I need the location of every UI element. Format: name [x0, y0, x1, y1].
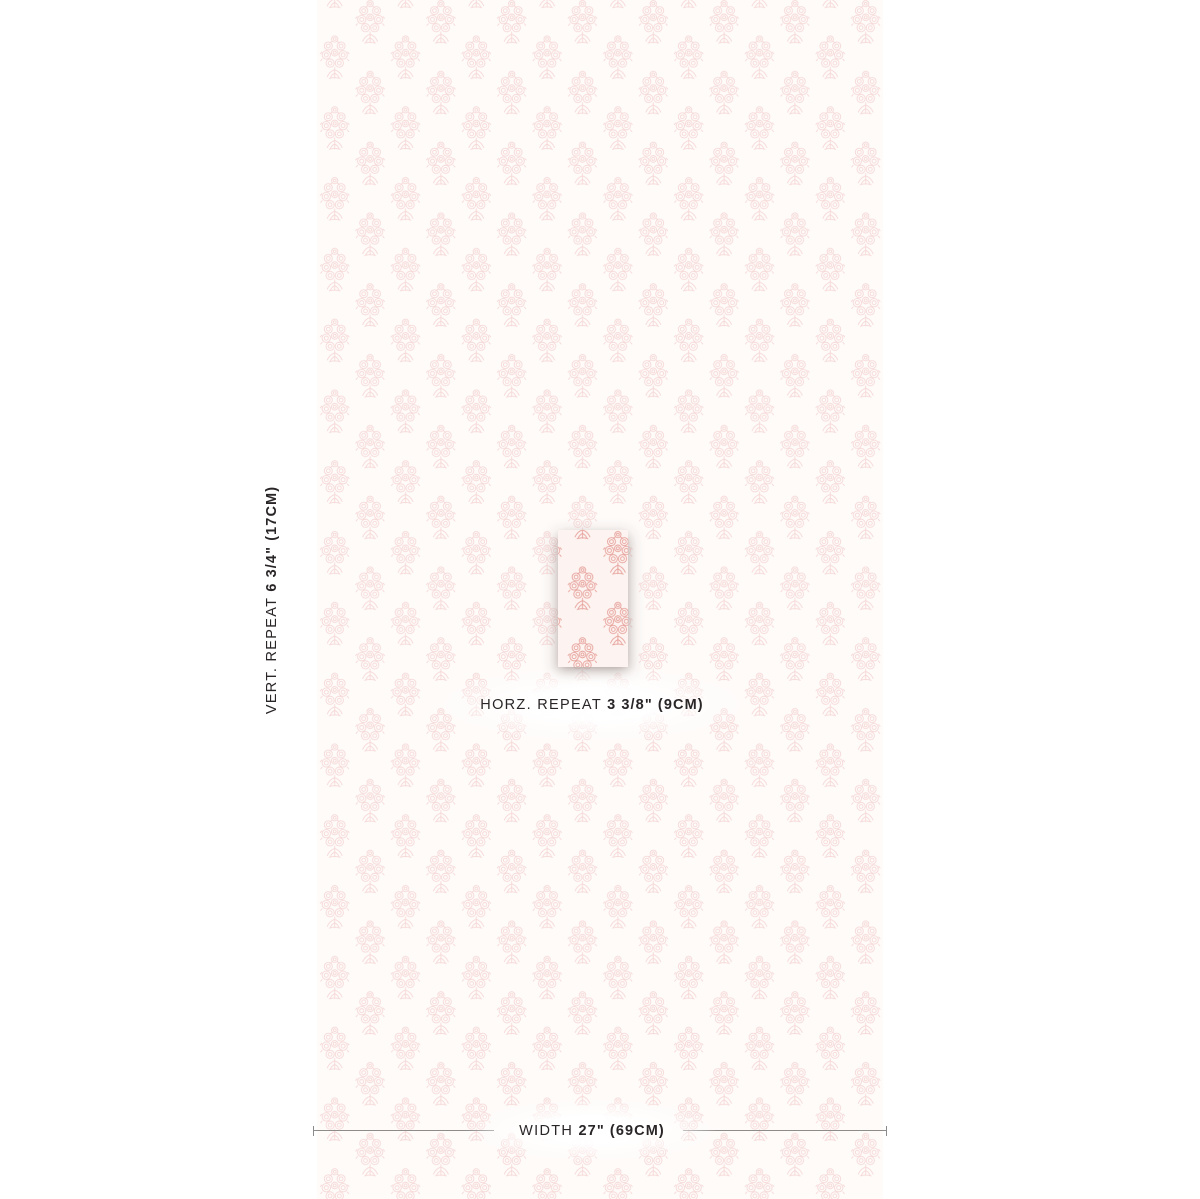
horizontal-repeat-label-text: HORZ. REPEAT: [480, 697, 601, 713]
width-dimension-line-left: [313, 1130, 494, 1131]
horizontal-repeat-label: HORZ. REPEAT 3 3/8" (9CM): [480, 697, 703, 713]
vertical-repeat-value: 6 3/4" (17CM): [264, 486, 280, 592]
wallpaper-swatch: [317, 0, 883, 1199]
width-dimension-line-right: [683, 1130, 887, 1131]
width-label-text: WIDTH: [519, 1123, 573, 1139]
width-value: 27" (69CM): [578, 1123, 664, 1139]
repeat-box-pattern: [558, 530, 628, 667]
width-dimension-tick-right: [886, 1126, 888, 1136]
vertical-repeat-label-text: VERT. REPEAT: [264, 597, 280, 714]
repeat-unit-box: [558, 530, 628, 667]
horizontal-repeat-value: 3 3/8" (9CM): [607, 697, 704, 713]
vertical-repeat-label: VERT. REPEAT 6 3/4" (17CM): [264, 486, 280, 714]
width-dimension-tick-left: [313, 1126, 315, 1136]
width-label: WIDTH 27" (69CM): [519, 1123, 665, 1139]
product-image-canvas: VERT. REPEAT 6 3/4" (17CM) HORZ. REPEAT …: [0, 0, 1200, 1199]
